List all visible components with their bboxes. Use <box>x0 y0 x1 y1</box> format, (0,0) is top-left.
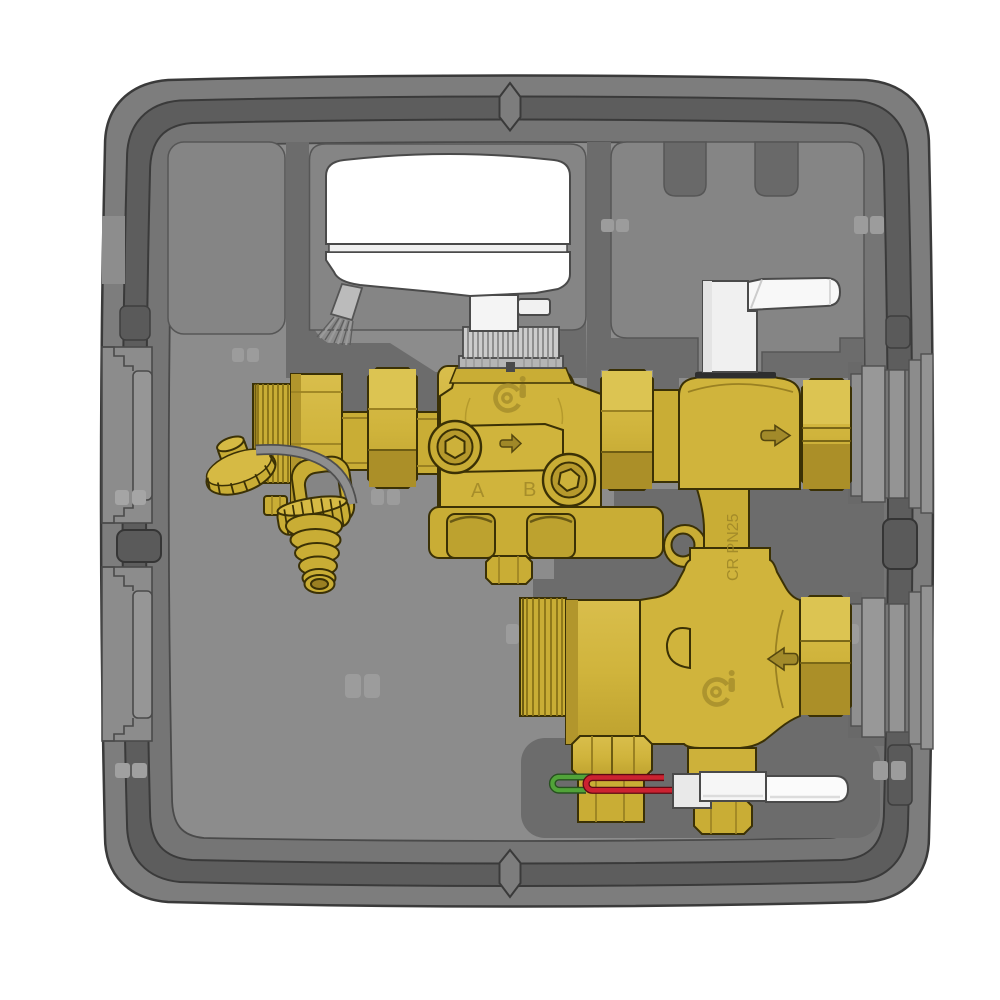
svg-text:A: A <box>471 480 485 502</box>
svg-text:CR PN25: CR PN25 <box>725 513 742 581</box>
svg-text:B: B <box>523 479 536 501</box>
